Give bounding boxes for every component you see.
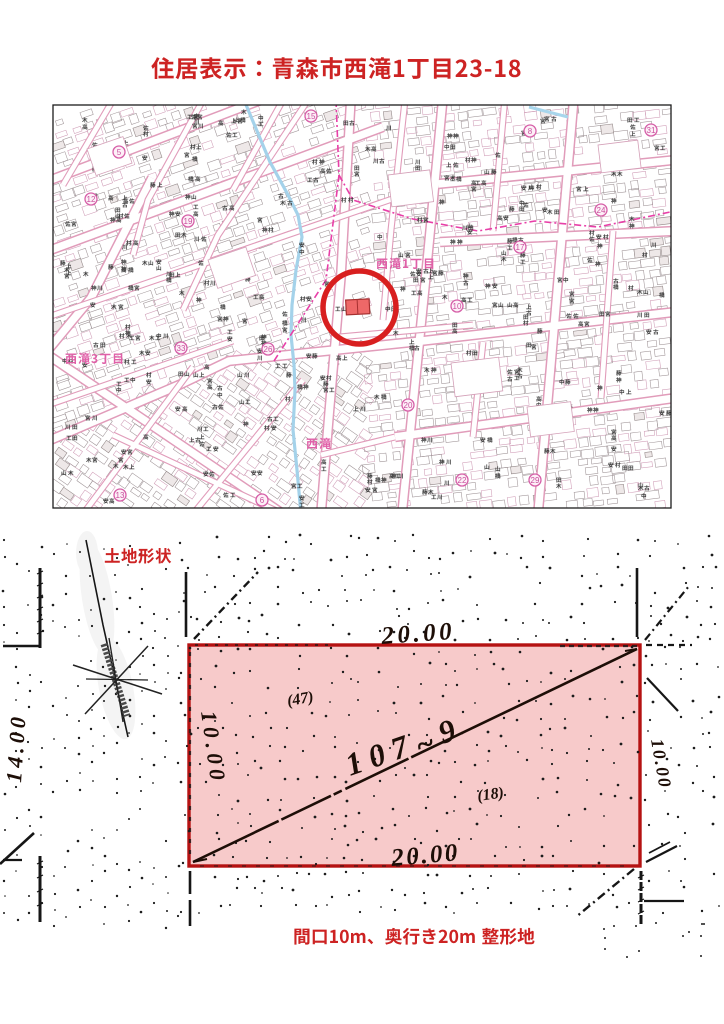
- svg-text:10: 10: [453, 302, 462, 311]
- svg-text:15: 15: [307, 112, 316, 121]
- svg-text:19: 19: [184, 217, 193, 226]
- svg-text:26: 26: [264, 345, 273, 354]
- svg-text:8: 8: [528, 127, 533, 136]
- svg-text:22: 22: [458, 476, 467, 485]
- svg-text:33: 33: [177, 344, 186, 353]
- svg-text:5: 5: [117, 148, 122, 157]
- svg-text:14.00: 14.00: [1, 712, 31, 783]
- svg-text:12: 12: [87, 195, 96, 204]
- svg-text:6: 6: [260, 496, 265, 505]
- svg-text:10.00: 10.00: [647, 737, 675, 790]
- svg-text:20.00: 20.00: [380, 618, 456, 650]
- svg-text:29: 29: [531, 476, 540, 485]
- svg-text:31: 31: [647, 126, 656, 135]
- svg-text:17: 17: [516, 243, 525, 252]
- svg-text:24: 24: [597, 206, 606, 215]
- svg-text:20: 20: [404, 401, 413, 410]
- svg-text:13: 13: [116, 491, 125, 500]
